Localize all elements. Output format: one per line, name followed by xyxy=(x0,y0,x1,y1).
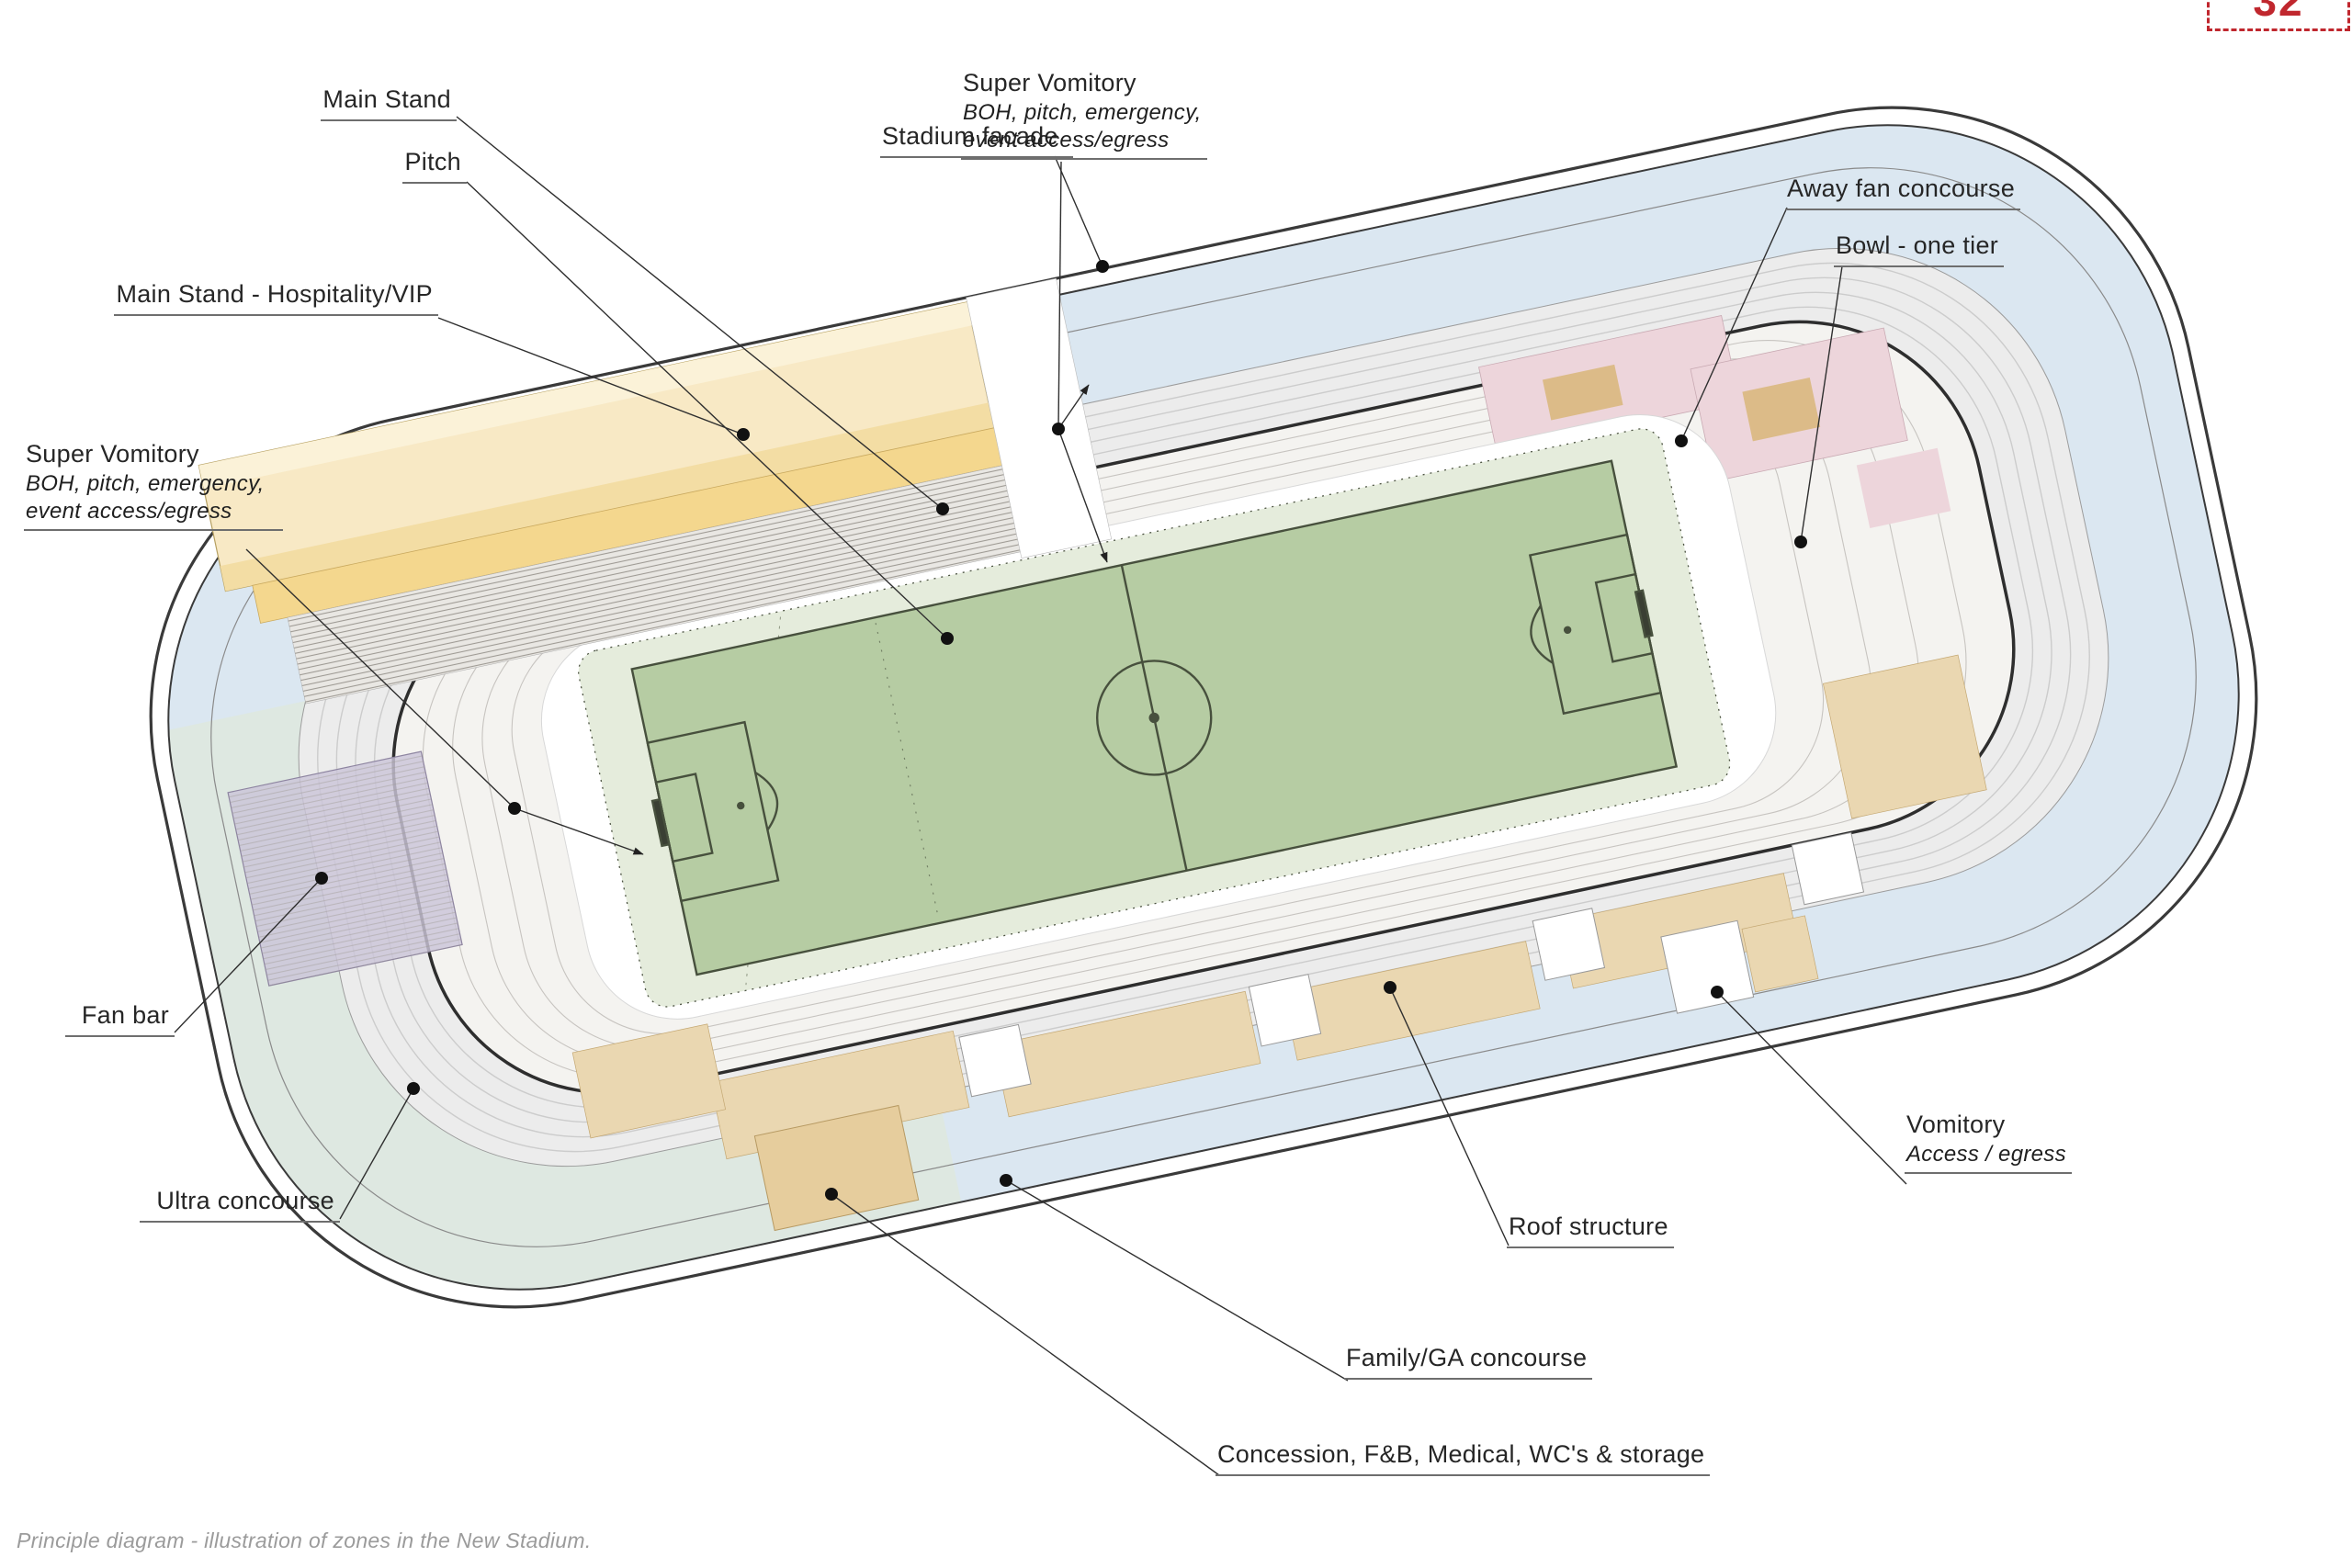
dot-super-vomitory-left xyxy=(508,802,521,815)
dot-family-ga xyxy=(1000,1174,1012,1187)
dot-concession xyxy=(825,1188,838,1201)
label-family-ga-concourse: Family/GA concourse xyxy=(1344,1343,1592,1380)
label-pitch: Pitch xyxy=(402,147,467,184)
label-roof-structure: Roof structure xyxy=(1507,1212,1674,1248)
vomitory-access-stair xyxy=(1742,916,1818,992)
dot-stadium-facade xyxy=(1096,260,1109,273)
fan-bar-zone xyxy=(228,751,462,986)
page-number: 32 xyxy=(2253,0,2303,26)
label-main-stand-hospitality: Main Stand - Hospitality/VIP xyxy=(114,279,438,316)
label-vomitory: Vomitory Access / egress xyxy=(1905,1110,2072,1174)
label-away-fan-concourse: Away fan concourse xyxy=(1785,174,2020,210)
label-ultra-concourse: Ultra concourse xyxy=(140,1186,340,1223)
vomitory-box xyxy=(1532,908,1604,980)
leader-concession xyxy=(831,1194,1219,1475)
dot-roof xyxy=(1384,981,1396,994)
diagram-caption: Principle diagram - illustration of zone… xyxy=(17,1529,592,1553)
dot-away-fan xyxy=(1675,434,1688,447)
label-bowl-one-tier: Bowl - one tier xyxy=(1834,231,2004,267)
dot-super-vomitory-right xyxy=(1052,423,1065,435)
label-fan-bar: Fan bar xyxy=(65,1000,175,1037)
terrace-block-right xyxy=(1823,655,1986,818)
vomitory-access-box xyxy=(1661,920,1754,1013)
dot-main-stand xyxy=(936,502,949,515)
dot-ultra xyxy=(407,1082,420,1095)
dot-fan-bar xyxy=(315,872,328,885)
label-concession: Concession, F&B, Medical, WC's & storage xyxy=(1216,1439,1710,1476)
label-super-vomitory-right: Super Vomitory BOH, pitch, emergency, ev… xyxy=(961,68,1207,160)
leader-stadium-facade xyxy=(1055,156,1102,266)
label-main-stand: Main Stand xyxy=(321,85,457,121)
dot-bowl xyxy=(1794,536,1807,548)
leader-family-ga xyxy=(1006,1180,1348,1381)
label-super-vomitory-left: Super Vomitory BOH, pitch, emergency, ev… xyxy=(24,439,283,531)
dot-vomitory xyxy=(1711,986,1724,998)
page-number-badge: 32 xyxy=(2207,0,2350,31)
dot-pitch xyxy=(941,632,954,645)
vomitory-box xyxy=(1249,975,1320,1046)
dot-hospitality xyxy=(737,428,750,441)
vomitory-box xyxy=(1792,832,1863,904)
vomitory-box xyxy=(959,1024,1031,1096)
stadium-zones-diagram: Main Stand Stadium facade Pitch Main Sta… xyxy=(0,0,2352,1568)
